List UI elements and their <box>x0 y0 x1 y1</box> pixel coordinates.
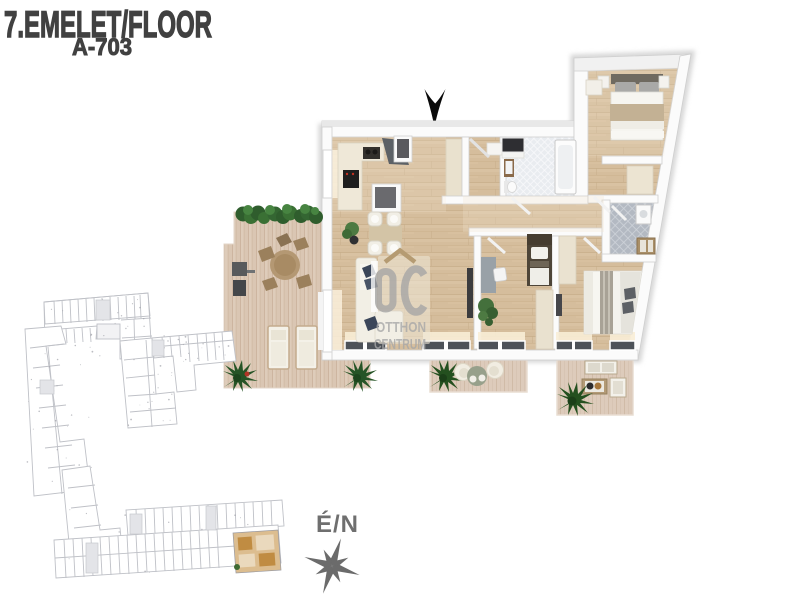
svg-text:OTTHON: OTTHON <box>376 319 426 336</box>
svg-text:É/N: É/N <box>316 510 359 538</box>
svg-text:A-703: A-703 <box>72 34 132 61</box>
svg-text:CENTRUM: CENTRUM <box>374 336 426 353</box>
